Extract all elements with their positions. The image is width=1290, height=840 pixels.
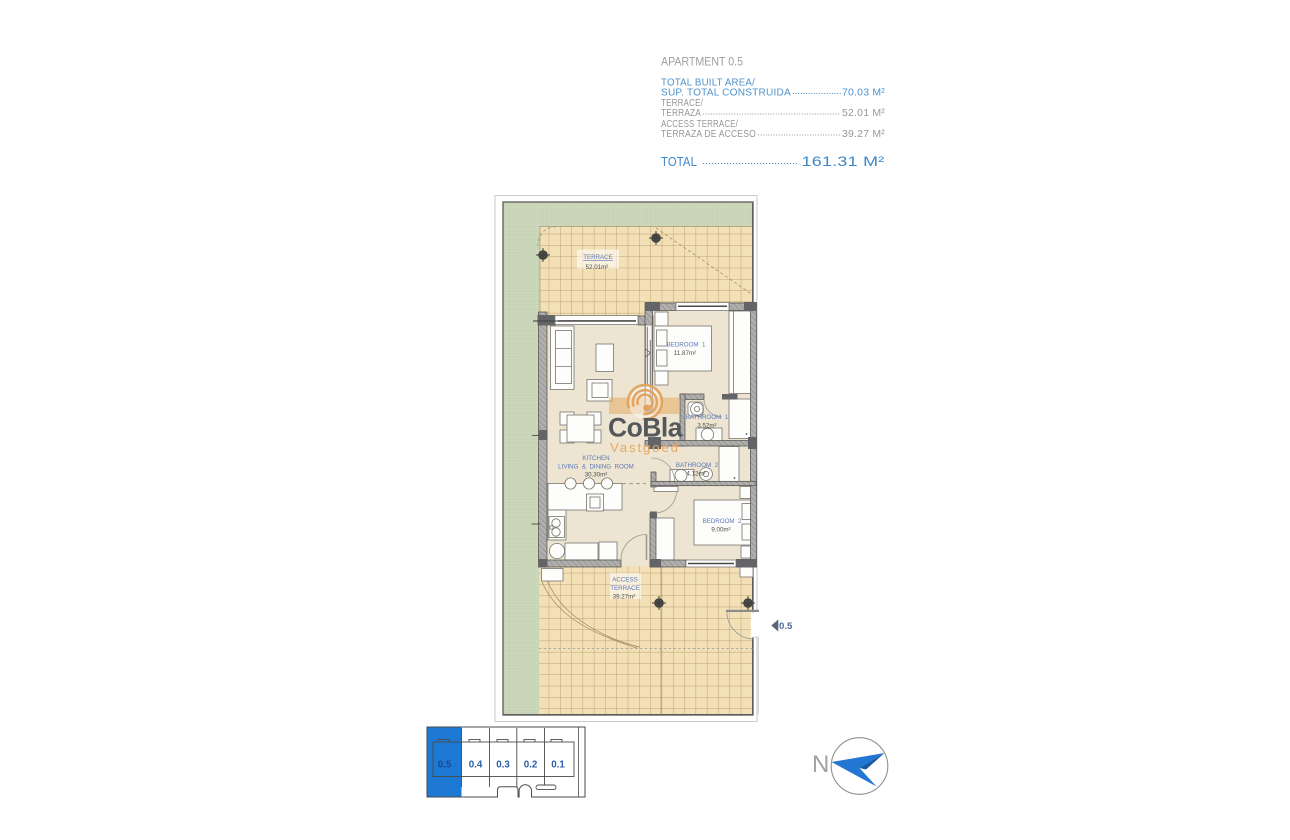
svg-text:N: N (812, 751, 829, 778)
svg-text:0.1: 0.1 (551, 760, 565, 771)
svg-text:CoBla: CoBla (608, 413, 683, 443)
svg-text:APARTMENT 0.5: APARTMENT 0.5 (661, 57, 743, 69)
svg-text:70.03 M²: 70.03 M² (842, 88, 885, 99)
svg-text:LIVING & DINING ROOM: LIVING & DINING ROOM (558, 464, 634, 471)
svg-text:0.5: 0.5 (438, 760, 452, 771)
svg-text:ACCESS: ACCESS (612, 577, 637, 584)
svg-text:TOTAL: TOTAL (661, 154, 697, 169)
svg-text:3.52m²: 3.52m² (697, 423, 716, 430)
svg-text:TERRAZA: TERRAZA (661, 108, 701, 119)
svg-text:KITCHEN: KITCHEN (582, 455, 609, 462)
svg-text:BEDROOM 1: BEDROOM 1 (667, 342, 706, 349)
svg-text:Vastgoed: Vastgoed (610, 440, 680, 455)
svg-text:TERRACE: TERRACE (583, 254, 613, 261)
svg-text:11.87m²: 11.87m² (674, 350, 696, 357)
svg-text:39.27 M²: 39.27 M² (842, 129, 885, 140)
svg-text:161.31 M²: 161.31 M² (802, 153, 885, 169)
svg-text:52.01m²: 52.01m² (586, 264, 609, 271)
svg-text:39.27m²: 39.27m² (613, 594, 636, 601)
svg-text:52.01 M²: 52.01 M² (842, 108, 885, 119)
svg-text:4.12m²: 4.12m² (686, 471, 705, 478)
svg-text:0.3: 0.3 (496, 760, 510, 771)
svg-text:BEDROOM 2: BEDROOM 2 (703, 518, 742, 525)
svg-text:BATHROOM 2: BATHROOM 2 (676, 462, 719, 469)
svg-text:0.2: 0.2 (524, 760, 538, 771)
svg-text:30.30m²: 30.30m² (585, 472, 608, 479)
svg-text:TERRAZA DE ACCESO: TERRAZA DE ACCESO (661, 129, 756, 140)
svg-text:9.00m²: 9.00m² (711, 527, 730, 534)
svg-text:BATHROOM 1: BATHROOM 1 (686, 414, 729, 421)
svg-text:SUP. TOTAL CONSTRUIDA: SUP. TOTAL CONSTRUIDA (661, 88, 791, 99)
svg-text:TERRACE: TERRACE (610, 585, 640, 592)
svg-text:0.5: 0.5 (779, 621, 793, 632)
svg-text:0.4: 0.4 (469, 760, 483, 771)
